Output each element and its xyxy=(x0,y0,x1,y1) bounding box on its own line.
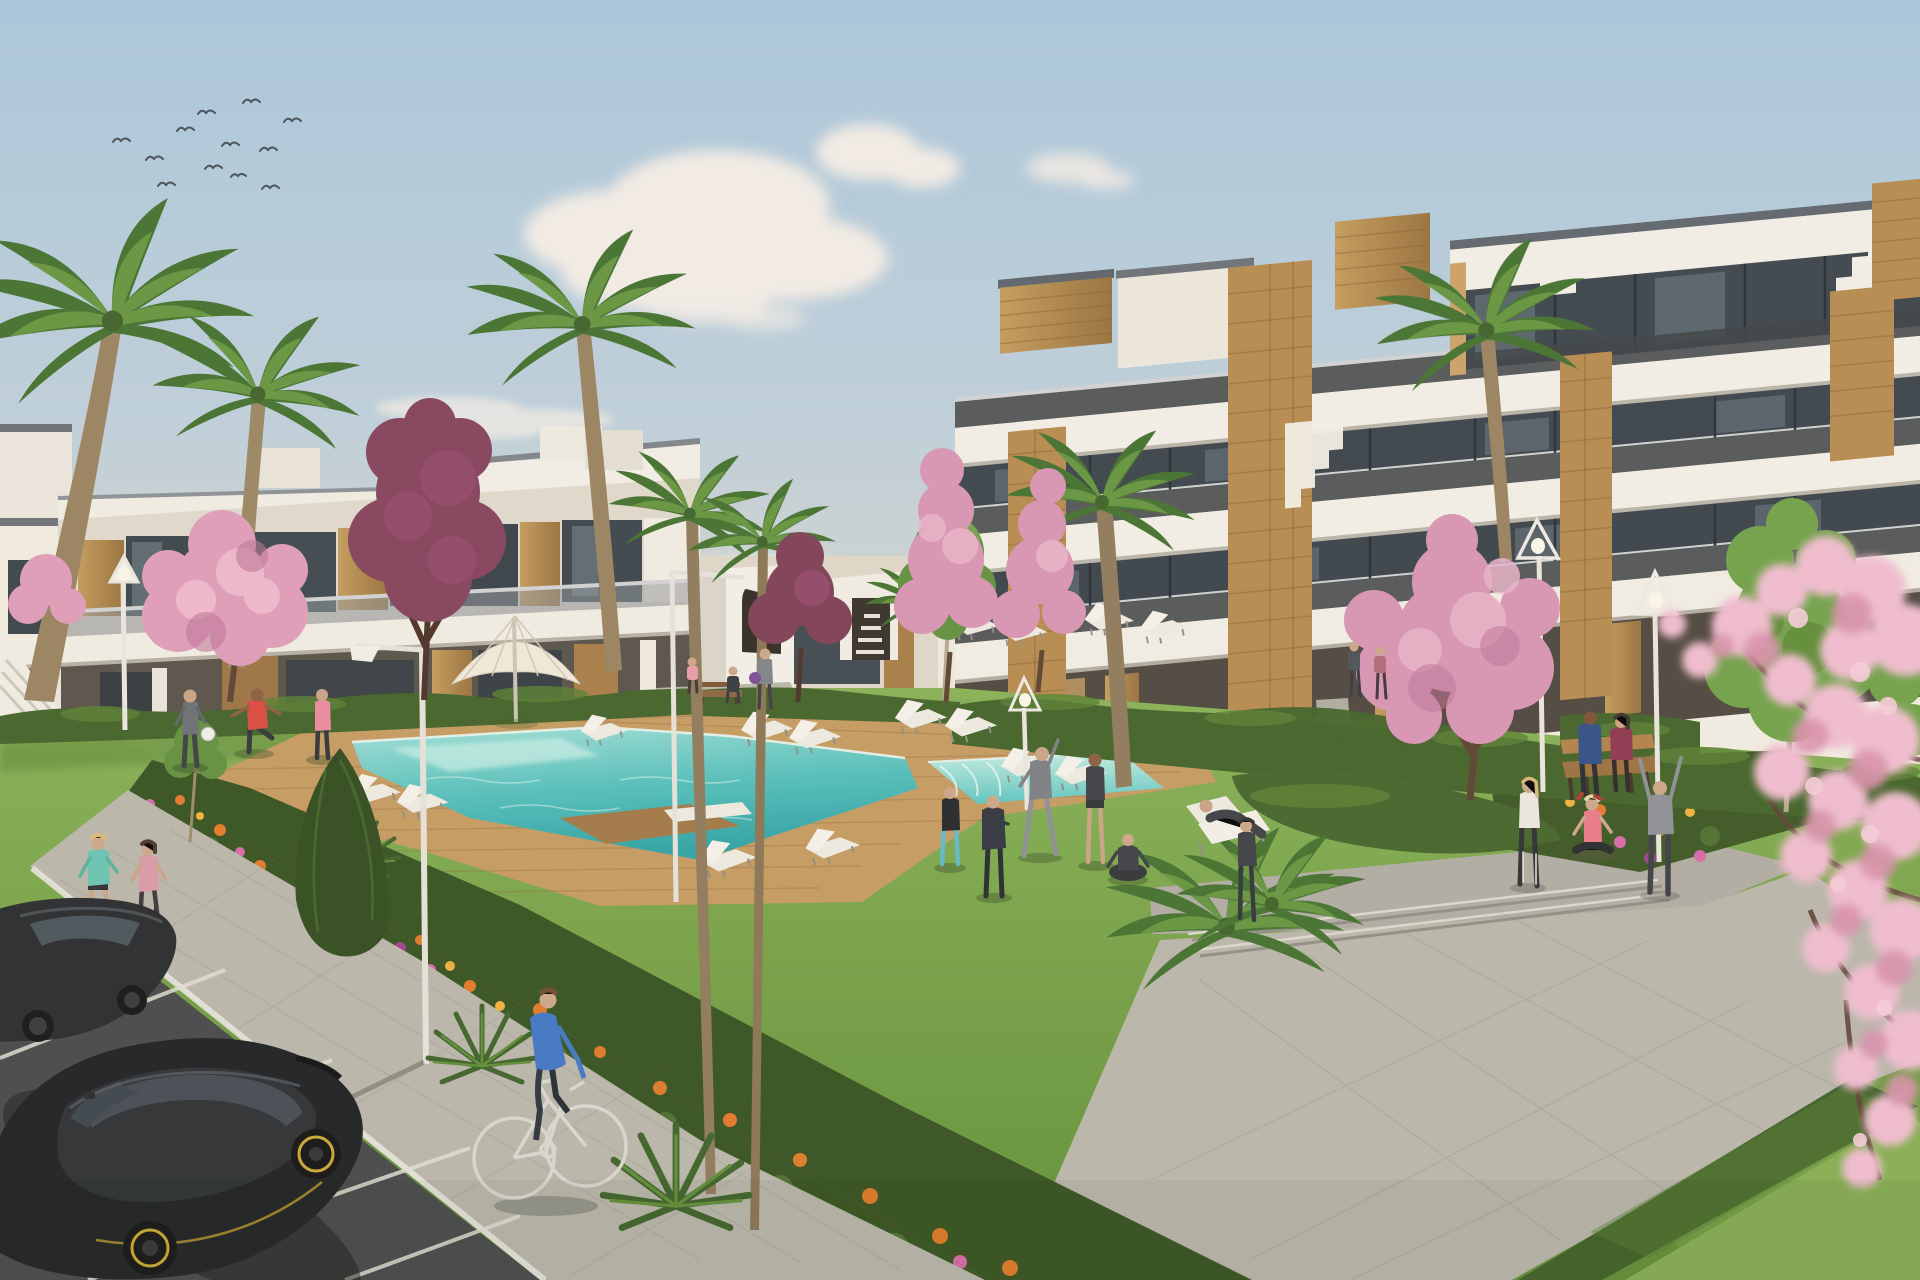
architectural-render xyxy=(0,0,1920,1280)
render-stage xyxy=(0,0,1920,1280)
light-overlay xyxy=(0,0,1920,1280)
